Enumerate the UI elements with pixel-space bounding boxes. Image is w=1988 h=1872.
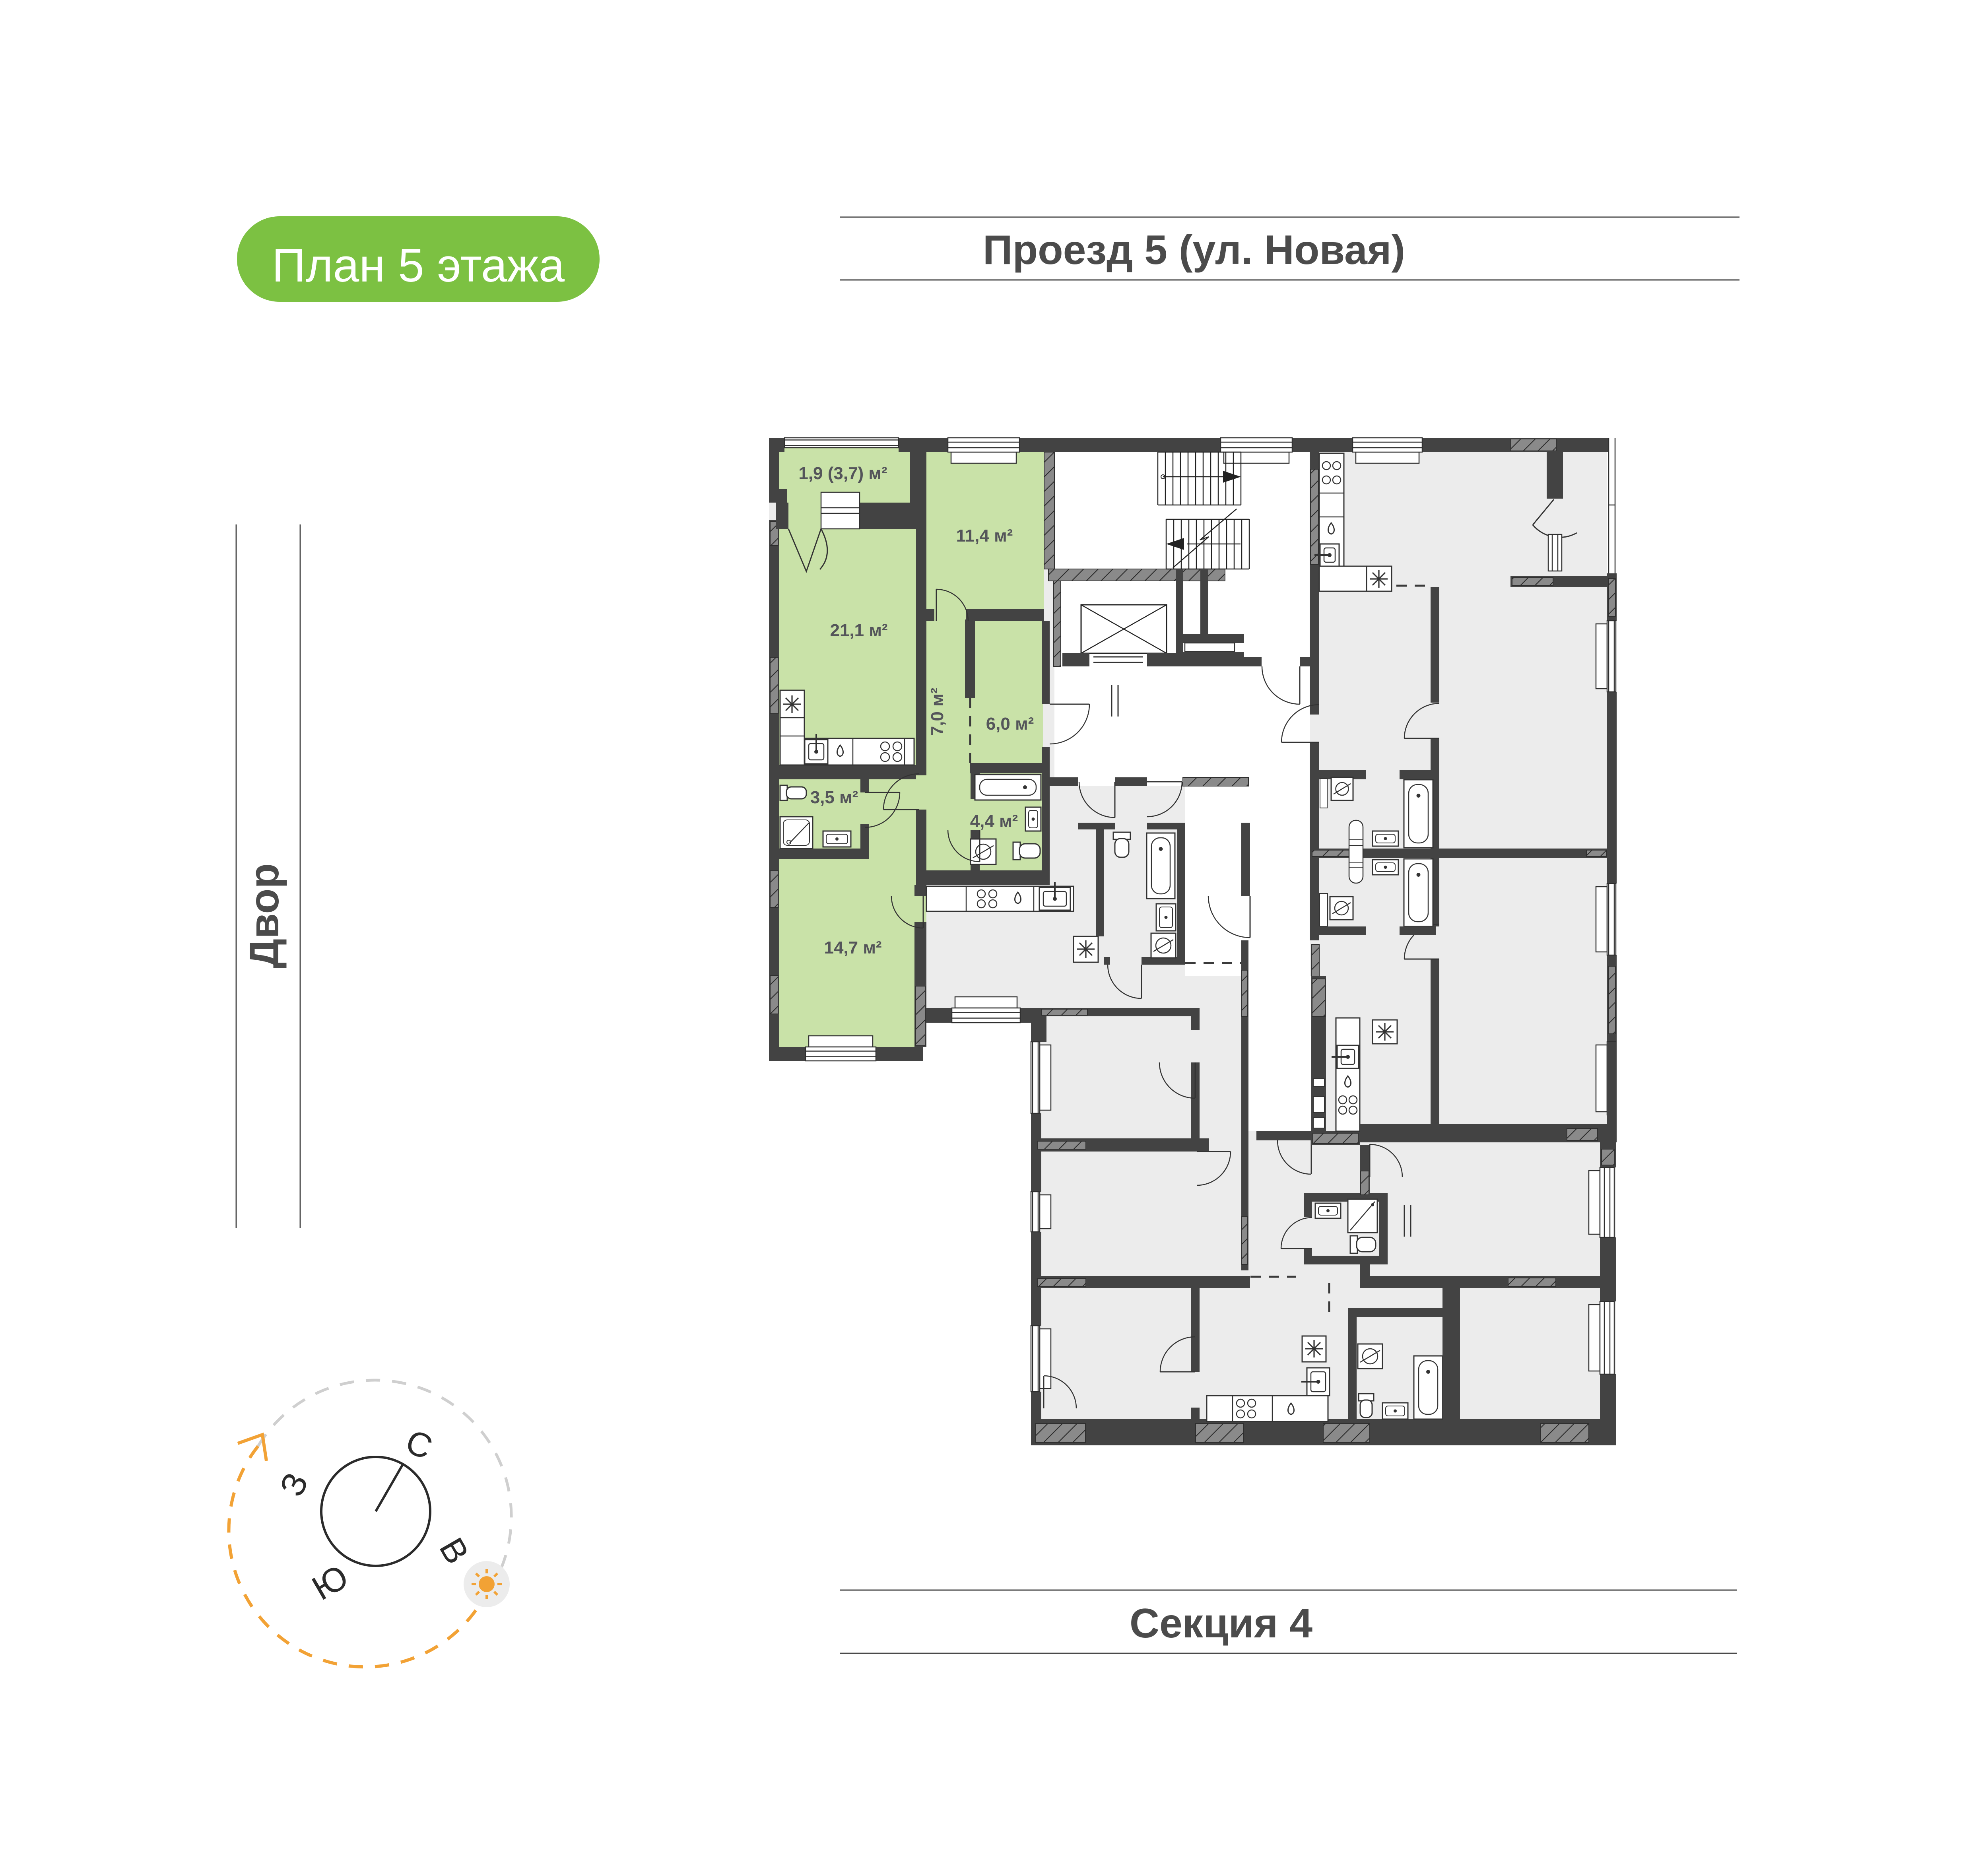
svg-text:4,4 м²: 4,4 м²	[970, 812, 1018, 831]
svg-text:6,0 м²: 6,0 м²	[986, 714, 1034, 734]
svg-text:14,7 м²: 14,7 м²	[824, 938, 881, 957]
svg-text:7,0 м²: 7,0 м²	[928, 688, 947, 736]
svg-text:Проезд 5 (ул. Новая): Проезд 5 (ул. Новая)	[983, 227, 1405, 273]
svg-text:Секция 4: Секция 4	[1130, 1600, 1312, 1647]
svg-text:3,5 м²: 3,5 м²	[810, 788, 858, 807]
svg-text:1,9 (3,7) м²: 1,9 (3,7) м²	[798, 464, 887, 483]
svg-text:21,1 м²: 21,1 м²	[830, 621, 887, 640]
svg-text:Двор: Двор	[241, 863, 287, 968]
svg-text:План 5 этажа: План 5 этажа	[272, 239, 565, 292]
svg-text:11,4 м²: 11,4 м²	[956, 526, 1013, 546]
